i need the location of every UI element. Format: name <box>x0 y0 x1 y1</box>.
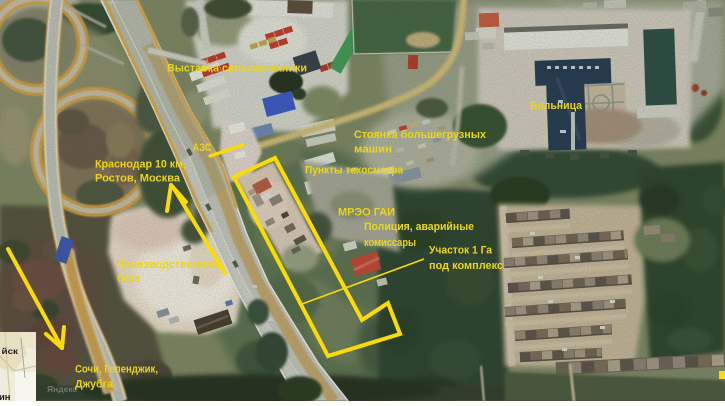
svg-text:Джубга: Джубга <box>75 379 114 391</box>
svg-text:АЗС: АЗС <box>193 142 212 154</box>
svg-text:Выставка сельхозтехники: Выставка сельхозтехники <box>167 63 307 75</box>
svg-text:Производственная: Производственная <box>116 259 218 271</box>
svg-text:Стоянка большегрузных: Стоянка большегрузных <box>354 129 487 141</box>
svg-text:Ростов, Москва: Ростов, Москва <box>95 173 181 185</box>
svg-text:Сочи, Геленджик,: Сочи, Геленджик, <box>75 364 158 376</box>
svg-text:Больница: Больница <box>530 100 583 112</box>
svg-text:база: база <box>117 273 141 285</box>
svg-text:йск: йск <box>2 346 19 356</box>
svg-text:под комплекс: под комплекс <box>429 260 503 272</box>
svg-text:ин: ин <box>0 392 11 401</box>
svg-text:Яндекс: Яндекс <box>47 384 78 394</box>
svg-text:Пункты техосмотра: Пункты техосмотра <box>305 165 404 177</box>
svg-text:Полиция, аварийные: Полиция, аварийные <box>364 221 474 233</box>
svg-text:машин: машин <box>354 144 392 156</box>
svg-text:Участок 1 Га: Участок 1 Га <box>429 245 493 257</box>
svg-text:МРЭО ГАИ: МРЭО ГАИ <box>338 207 395 219</box>
svg-text:комиссары: комиссары <box>364 237 416 249</box>
svg-text:Краснодар 10 км,: Краснодар 10 км, <box>95 159 186 171</box>
